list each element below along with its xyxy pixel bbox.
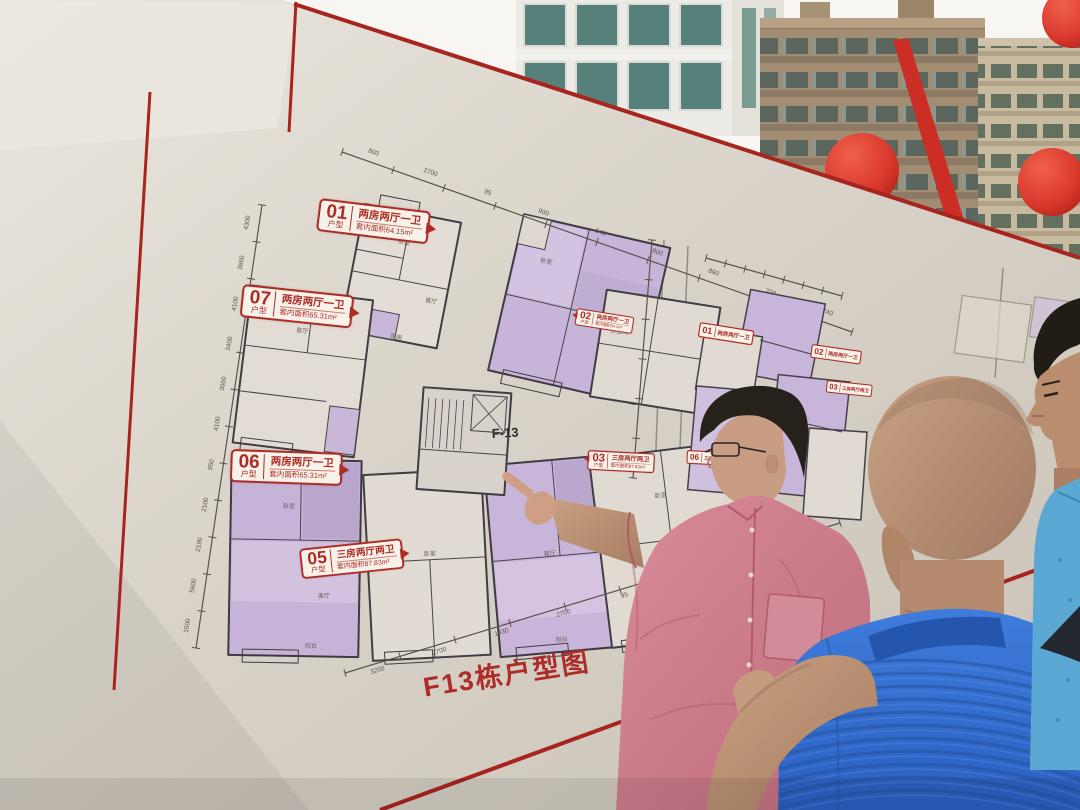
people-svg xyxy=(0,0,1080,810)
ear xyxy=(765,454,779,474)
bottom-vignette xyxy=(0,778,1080,810)
photo-of-floorplan-board: F-13 卧室 卧室 餐厅 厨房 客厅 卧室 卫生间 卧室 客厅 卧室 客厅 卧… xyxy=(0,0,1080,810)
nose xyxy=(708,458,711,468)
right-edge-man xyxy=(1026,298,1080,770)
pointing-arm xyxy=(548,498,644,568)
pointing-finger xyxy=(501,470,535,499)
